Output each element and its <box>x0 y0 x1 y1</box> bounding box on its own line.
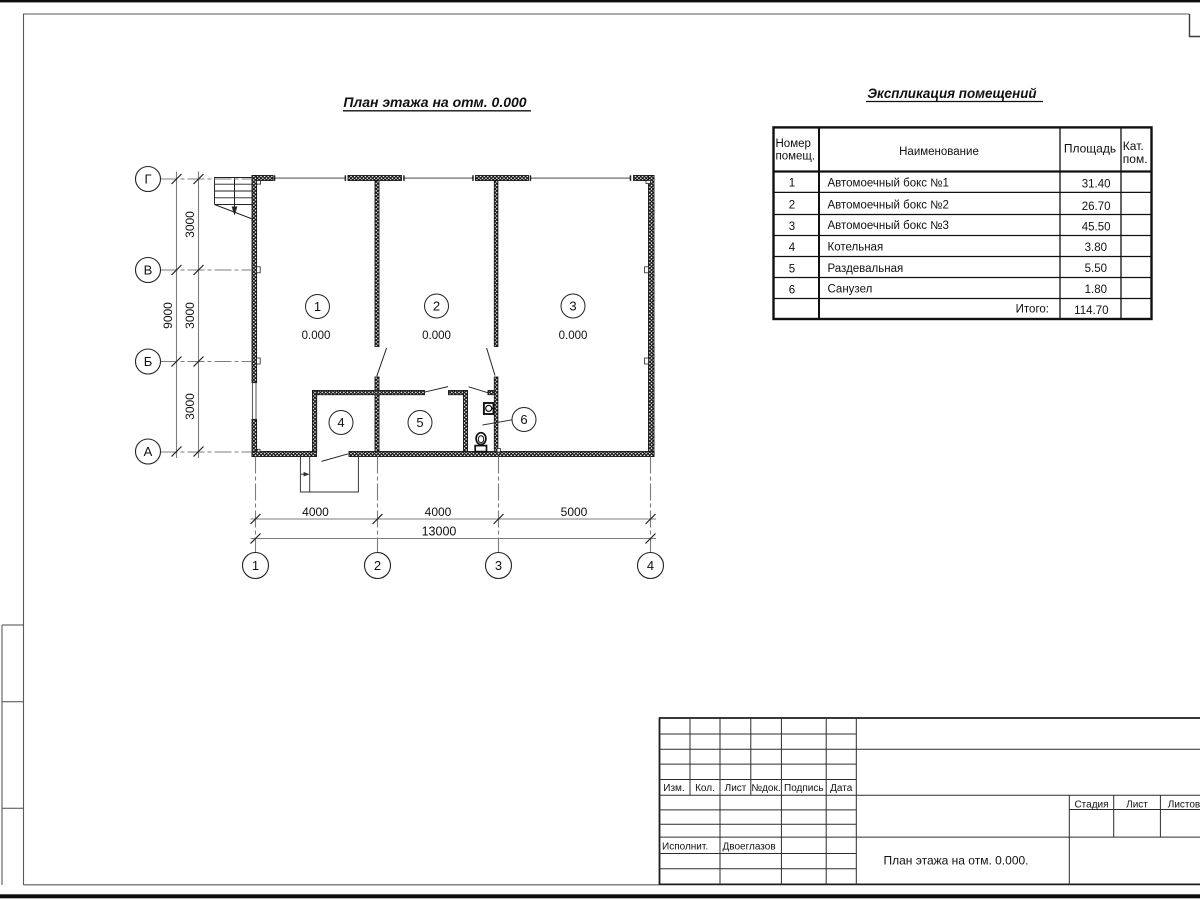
svg-text:А: А <box>144 444 153 459</box>
svg-text:3: 3 <box>789 221 795 233</box>
svg-text:2: 2 <box>374 558 381 573</box>
svg-text:4: 4 <box>789 242 796 254</box>
svg-text:6: 6 <box>520 412 527 427</box>
svg-text:Б: Б <box>144 354 153 369</box>
svg-text:3000: 3000 <box>183 302 197 329</box>
svg-text:0.000: 0.000 <box>422 330 451 342</box>
svg-text:План этажа на отм. 0.000: План этажа на отм. 0.000 <box>343 94 526 110</box>
svg-text:Дата: Дата <box>830 783 853 794</box>
svg-text:Изм.: Изм. <box>663 783 684 794</box>
svg-text:Исполнит.: Исполнит. <box>662 842 708 853</box>
svg-text:Лист: Лист <box>1126 800 1148 811</box>
svg-text:Итого:: Итого: <box>1016 304 1049 316</box>
svg-text:1.80: 1.80 <box>1085 284 1107 296</box>
svg-text:5: 5 <box>416 415 423 430</box>
svg-text:5000: 5000 <box>561 505 588 519</box>
svg-text:Автомоечный бокс №3: Автомоечный бокс №3 <box>828 220 949 232</box>
svg-text:31.40: 31.40 <box>1082 179 1111 191</box>
svg-text:пом.: пом. <box>1123 152 1148 166</box>
svg-text:1: 1 <box>314 299 321 314</box>
svg-text:Котельная: Котельная <box>828 242 884 254</box>
svg-text:114.70: 114.70 <box>1074 305 1108 317</box>
svg-text:План этажа на отм. 0.000.: План этажа на отм. 0.000. <box>883 854 1028 868</box>
svg-text:Экспликация помещений: Экспликация помещений <box>867 86 1036 101</box>
svg-text:Лист: Лист <box>725 783 747 794</box>
svg-text:0.000: 0.000 <box>559 330 588 342</box>
svg-text:Раздевальная: Раздевальная <box>828 263 904 275</box>
svg-text:13000: 13000 <box>422 525 457 539</box>
svg-text:Двоеглазов: Двоеглазов <box>723 842 776 853</box>
svg-text:3000: 3000 <box>183 393 197 420</box>
svg-text:3: 3 <box>569 299 576 314</box>
svg-text:3: 3 <box>495 558 502 573</box>
svg-text:3.80: 3.80 <box>1085 242 1107 254</box>
svg-text:Автомоечный бокс №2: Автомоечный бокс №2 <box>828 200 949 212</box>
svg-text:Площадь: Площадь <box>1064 142 1116 156</box>
svg-text:Санузел: Санузел <box>828 284 873 296</box>
svg-text:2: 2 <box>433 299 440 314</box>
svg-text:9000: 9000 <box>161 302 175 329</box>
svg-text:Стадия: Стадия <box>1074 800 1108 811</box>
svg-text:26.70: 26.70 <box>1082 201 1111 213</box>
svg-text:В: В <box>144 263 153 278</box>
svg-text:Наименование: Наименование <box>899 146 979 158</box>
svg-text:3000: 3000 <box>183 211 197 238</box>
svg-text:6: 6 <box>789 285 795 297</box>
svg-text:1: 1 <box>789 178 795 190</box>
svg-text:4000: 4000 <box>425 505 452 519</box>
svg-text:1: 1 <box>252 558 259 573</box>
svg-text:помещ.: помещ. <box>776 151 816 163</box>
svg-text:5.50: 5.50 <box>1085 263 1107 275</box>
svg-text:Листов: Листов <box>1168 800 1200 811</box>
svg-text:№док.: №док. <box>751 783 780 794</box>
svg-text:4: 4 <box>647 558 654 573</box>
svg-text:45.50: 45.50 <box>1082 222 1111 234</box>
svg-text:Кол.: Кол. <box>695 783 715 794</box>
svg-text:5: 5 <box>789 264 795 276</box>
svg-text:Подпись: Подпись <box>784 783 824 794</box>
svg-text:4: 4 <box>337 415 344 430</box>
svg-text:4000: 4000 <box>302 505 329 519</box>
svg-text:Номер: Номер <box>776 138 811 150</box>
svg-text:0.000: 0.000 <box>302 330 331 342</box>
svg-text:Автомоечный бокс №1: Автомоечный бокс №1 <box>828 178 949 190</box>
svg-text:Г: Г <box>144 172 151 187</box>
svg-text:2: 2 <box>789 200 795 212</box>
